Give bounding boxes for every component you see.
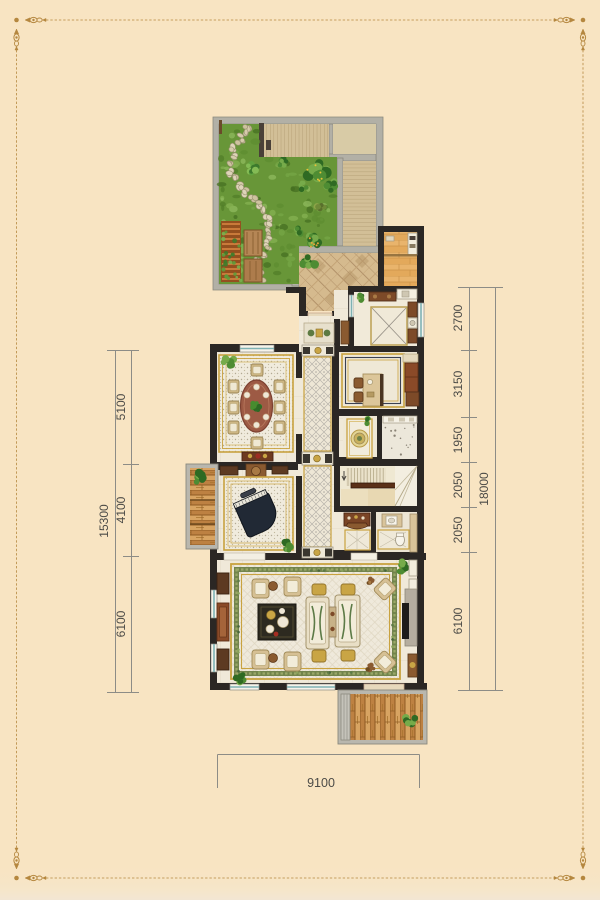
svg-text:9100: 9100 [307,776,335,790]
svg-text:2050: 2050 [451,471,465,498]
svg-text:2050: 2050 [451,516,465,543]
svg-text:6100: 6100 [451,607,465,634]
svg-text:6100: 6100 [114,610,128,637]
svg-text:15300: 15300 [97,504,111,538]
svg-text:1950: 1950 [451,426,465,453]
svg-text:18000: 18000 [477,472,491,506]
svg-text:3150: 3150 [451,370,465,397]
svg-text:5100: 5100 [114,393,128,420]
svg-text:2700: 2700 [451,304,465,331]
svg-text:4100: 4100 [114,496,128,523]
